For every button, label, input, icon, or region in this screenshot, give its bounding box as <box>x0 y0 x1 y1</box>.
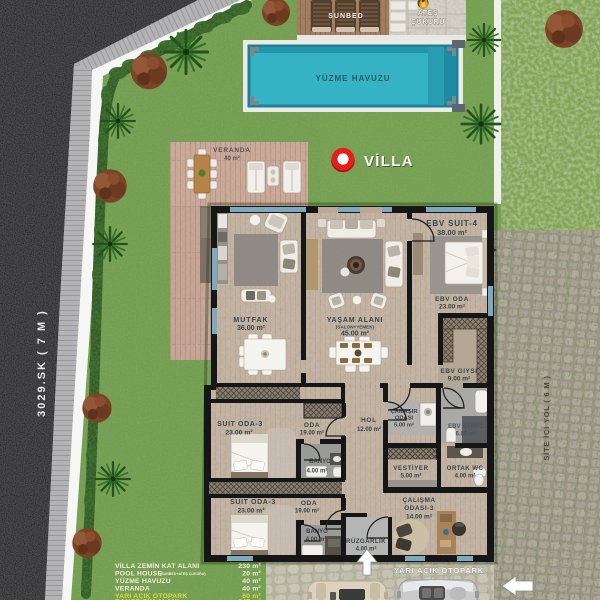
svg-text:20 m²: 20 m² <box>242 571 261 578</box>
svg-text:MUTFAK: MUTFAK <box>233 317 268 324</box>
svg-text:40 m²: 40 m² <box>242 578 261 585</box>
svg-text:40 m²: 40 m² <box>224 155 240 162</box>
svg-text:ODASI-3: ODASI-3 <box>404 505 434 512</box>
svg-text:ÇUKURU: ÇUKURU <box>411 19 445 26</box>
svg-text:POOL HOUSE: POOL HOUSE <box>115 571 162 578</box>
svg-text:YARI AÇIK OTOPARK: YARI AÇIK OTOPARK <box>394 566 484 575</box>
svg-text:4.00 m²: 4.00 m² <box>307 468 328 475</box>
svg-text:23.00 m²: 23.00 m² <box>225 430 253 437</box>
svg-text:HOL: HOL <box>361 417 377 424</box>
svg-text:ODA: ODA <box>304 422 320 429</box>
svg-text:SUNBED: SUNBED <box>328 13 364 20</box>
svg-text:EBV BANYO: EBV BANYO <box>448 424 484 430</box>
svg-text:3029.SK ( 7 M ): 3029.SK ( 7 M ) <box>36 309 48 417</box>
svg-text:SİTE İÇİ YOL ( 6 M ): SİTE İÇİ YOL ( 6 M ) <box>542 375 551 460</box>
svg-text:ODA: ODA <box>301 500 317 507</box>
svg-text:VESTİYER: VESTİYER <box>393 465 428 472</box>
svg-text:ATEŞ: ATEŞ <box>418 10 439 17</box>
svg-text:(SALON+YEMEK): (SALON+YEMEK) <box>336 325 375 330</box>
svg-text:4.00 m²: 4.00 m² <box>455 473 476 480</box>
svg-text:19.00 m²: 19.00 m² <box>300 430 324 437</box>
svg-text:9.00 m²: 9.00 m² <box>448 376 471 383</box>
svg-text:ORTAK WC: ORTAK WC <box>447 465 484 472</box>
svg-text:6.00 m²: 6.00 m² <box>456 431 477 438</box>
svg-text:RÜZGARLIK: RÜZGARLIK <box>346 538 386 545</box>
svg-text:4.00 m²: 4.00 m² <box>306 536 327 543</box>
svg-text:5.00 m²: 5.00 m² <box>401 473 422 480</box>
svg-text:VİLLA: VİLLA <box>364 153 414 170</box>
svg-text:YAŞAM ALANI: YAŞAM ALANI <box>327 317 384 324</box>
svg-text:38.00 m²: 38.00 m² <box>437 228 468 237</box>
svg-text:YÜZME HAVUZU: YÜZME HAVUZU <box>115 576 171 585</box>
svg-text:VİLLA ZEMİN KAT ALANI: VİLLA ZEMİN KAT ALANI <box>115 562 199 570</box>
svg-text:ÇALIŞMA: ÇALIŞMA <box>402 497 435 504</box>
svg-text:VERANDA: VERANDA <box>213 147 251 154</box>
svg-text:EBV SUIT-4: EBV SUIT-4 <box>426 219 478 228</box>
svg-text:YÜZME HAVUZU: YÜZME HAVUZU <box>316 74 391 83</box>
svg-text:40 m²: 40 m² <box>242 586 261 593</box>
svg-text:230 m²: 230 m² <box>238 563 261 570</box>
svg-text:19.00 m²: 19.00 m² <box>295 508 319 515</box>
svg-text:EBV ODA: EBV ODA <box>435 296 469 303</box>
svg-text:5.00 m²: 5.00 m² <box>394 422 414 429</box>
svg-text:SUIT ODA-3: SUIT ODA-3 <box>217 421 263 428</box>
svg-text:23.00 m²: 23.00 m² <box>439 304 466 311</box>
svg-text:12.00 m²: 12.00 m² <box>357 426 381 433</box>
svg-text:36.00 m²: 36.00 m² <box>237 325 266 332</box>
svg-text:(SUNBED+ATEŞ ÇUKURU): (SUNBED+ATEŞ ÇUKURU) <box>160 572 206 576</box>
svg-text:EBV GIYSI: EBV GIYSI <box>440 368 477 375</box>
svg-text:VERANDA: VERANDA <box>115 586 150 593</box>
svg-text:SUIT ODA-3: SUIT ODA-3 <box>230 499 276 506</box>
svg-text:23.00 m²: 23.00 m² <box>237 508 265 515</box>
